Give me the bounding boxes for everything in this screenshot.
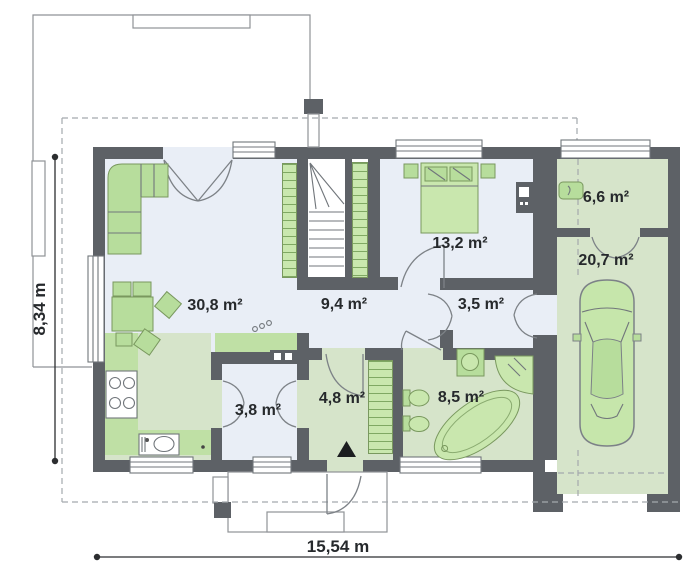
room-label-living: 30,8 m² (187, 297, 242, 315)
room-label-garage: 20,7 m² (578, 252, 633, 270)
room-label-corridor: 3,5 m² (458, 296, 504, 314)
dimension-line-width (94, 554, 682, 560)
stairs-icon (309, 163, 344, 266)
dimension-label-height: 8,34 m (30, 283, 50, 336)
chimney-shaft-icon (516, 182, 533, 213)
car-icon (573, 280, 641, 446)
dimension-line-height (52, 154, 58, 464)
shower-icon (495, 356, 533, 394)
corner-sofa-icon (108, 164, 168, 254)
pass-through-icon (253, 321, 272, 332)
kitchen-sink-icon (139, 434, 205, 455)
boiler-icon (559, 182, 583, 199)
room-label-hallway: 9,4 m² (321, 296, 367, 314)
porch-step (267, 512, 344, 532)
bed-icon (404, 163, 495, 233)
room-label-pantry: 3,8 m² (235, 402, 281, 420)
room-label-vestibule: 4,8 m² (319, 390, 365, 408)
nightstand-icon (481, 164, 495, 178)
bidet-icon (403, 416, 429, 432)
room-label-bedroom: 13,2 m² (432, 235, 487, 253)
oven-appliance-icon (270, 350, 299, 364)
nightstand-icon (404, 164, 418, 178)
stove-icon (106, 371, 137, 418)
dimension-label-width: 15,54 m (307, 537, 369, 557)
chimney-icon (304, 99, 323, 147)
room-label-bathroom: 8,5 m² (438, 389, 484, 407)
toilet-icon (403, 390, 429, 406)
room-label-utility: 6,6 m² (583, 189, 629, 207)
dining-table-icon (112, 282, 181, 355)
entrance-arrow-icon (337, 441, 356, 457)
entrance-porch (213, 472, 387, 532)
lightwell-outline (32, 161, 45, 256)
bathroom-sink-icon (457, 349, 484, 376)
floor-plan: 30,8 m² 9,4 m² 13,2 m² 3,5 m² 6,6 m² 20,… (0, 0, 700, 574)
